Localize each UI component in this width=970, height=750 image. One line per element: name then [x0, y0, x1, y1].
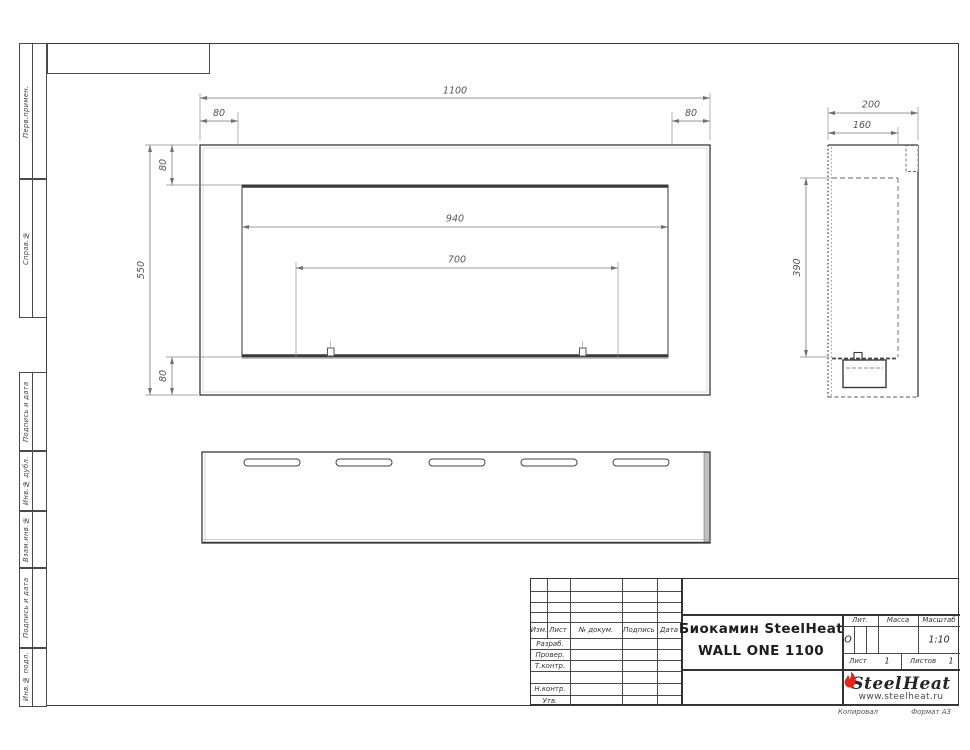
- role-tcontrol: Т.контр.: [535, 662, 565, 670]
- sidebar-label: Инв.№ дубл.: [20, 451, 32, 511]
- sheets-label: Листов: [910, 657, 936, 665]
- document-title-line2: WALL ONE 1100: [698, 643, 824, 659]
- sidebar-cell-podpis-data-2: Подпись и дата: [19, 567, 47, 649]
- grid-line: [854, 626, 855, 653]
- sidebar-cell-inv-dubl: Инв.№ дубл.: [19, 450, 47, 512]
- sidebar-cell-inner: Инв.№ дубл.: [20, 451, 33, 511]
- sidebar-cell-inner: Перв.примен.: [20, 44, 33, 179]
- role-developed: Разраб.: [536, 640, 564, 648]
- grid-line: [531, 671, 681, 672]
- scale-value: 1:10: [928, 634, 949, 645]
- sidebar-cell-inner: Взам.инв.№: [20, 511, 33, 568]
- designation-stamp-cell: [47, 43, 210, 74]
- sidebar-cell-vzam-inv: Взам.инв.№: [19, 510, 47, 569]
- grid-line: [622, 579, 623, 706]
- sidebar-cell-inner: Инв.№ подл.: [20, 648, 33, 706]
- grid-line: [878, 614, 879, 653]
- title-block: Изм. Лист № докум. Подпись Дата Разраб. …: [530, 578, 959, 705]
- grid-line: [918, 614, 919, 653]
- header-signature: Подпись: [623, 626, 655, 634]
- grid-line: [681, 579, 683, 706]
- header-date: Дата: [660, 626, 678, 634]
- role-checked: Провер.: [535, 651, 564, 659]
- logo-word-steel: Steel: [851, 674, 902, 694]
- sidebar-label: Перв.примен.: [20, 44, 32, 179]
- sidebar-cell-inner: Подпись и дата: [20, 373, 33, 451]
- grid-line: [842, 653, 960, 654]
- sidebar-cell-inv-podl: Инв.№ подл.: [19, 647, 47, 707]
- grid-line: [842, 626, 960, 627]
- sheet-number: 1: [884, 657, 889, 666]
- sidebar-cell-inner: Подпись и дата: [20, 568, 33, 648]
- grid-line: [531, 622, 681, 623]
- grid-line: [866, 626, 867, 653]
- lit-value: О: [844, 634, 851, 645]
- flame-icon: [842, 669, 857, 688]
- sidebar-label: Подпись и дата: [20, 568, 32, 648]
- grid-line: [531, 683, 681, 684]
- role-ncontrol: Н.контр.: [534, 685, 565, 693]
- sidebar-label: Взам.инв.№: [20, 511, 32, 568]
- scale-label: Масштаб: [922, 616, 955, 624]
- grid-line: [681, 614, 960, 616]
- role-approved: Утв.: [543, 697, 558, 705]
- sidebar-cell-podpis-data-1: Подпись и дата: [19, 372, 47, 452]
- grid-line: [531, 591, 681, 592]
- document-title-line1: Биокамин SteelHeat: [679, 621, 843, 637]
- company-logo: Steel Heat www.steelheat.ru: [842, 669, 960, 706]
- logo-word-heat: Heat: [903, 674, 951, 694]
- sidebar-label: Инв.№ подл.: [20, 648, 32, 706]
- grid-line: [531, 602, 681, 603]
- sidebar-label: Подпись и дата: [20, 373, 32, 451]
- lit-label: Лит.: [852, 616, 868, 624]
- grid-line: [531, 612, 681, 613]
- copied-label: Копировал: [838, 708, 878, 716]
- sidebar-label: Справ.№: [20, 179, 32, 317]
- sidebar-cell-sprav-no: Справ.№: [19, 178, 47, 318]
- header-list: Лист: [549, 626, 567, 634]
- sheets-total: 1: [948, 657, 953, 666]
- grid-line: [901, 653, 902, 669]
- mass-label: Масса: [887, 616, 909, 624]
- sidebar-cell-inner: Справ.№: [20, 179, 33, 317]
- header-doc-number: № докум.: [579, 626, 614, 634]
- header-izm: Изм.: [531, 626, 547, 634]
- grid-line: [657, 579, 658, 706]
- drawing-sheet: 1100 80 80 80 550 80 940 700: [0, 0, 970, 750]
- grid-line: [570, 579, 571, 706]
- format-label: Формат А3: [911, 708, 951, 716]
- sidebar-cell-perv-primen: Перв.примен.: [19, 43, 47, 180]
- sheet-label: Лист: [849, 657, 867, 665]
- logo-website: www.steelheat.ru: [859, 692, 944, 702]
